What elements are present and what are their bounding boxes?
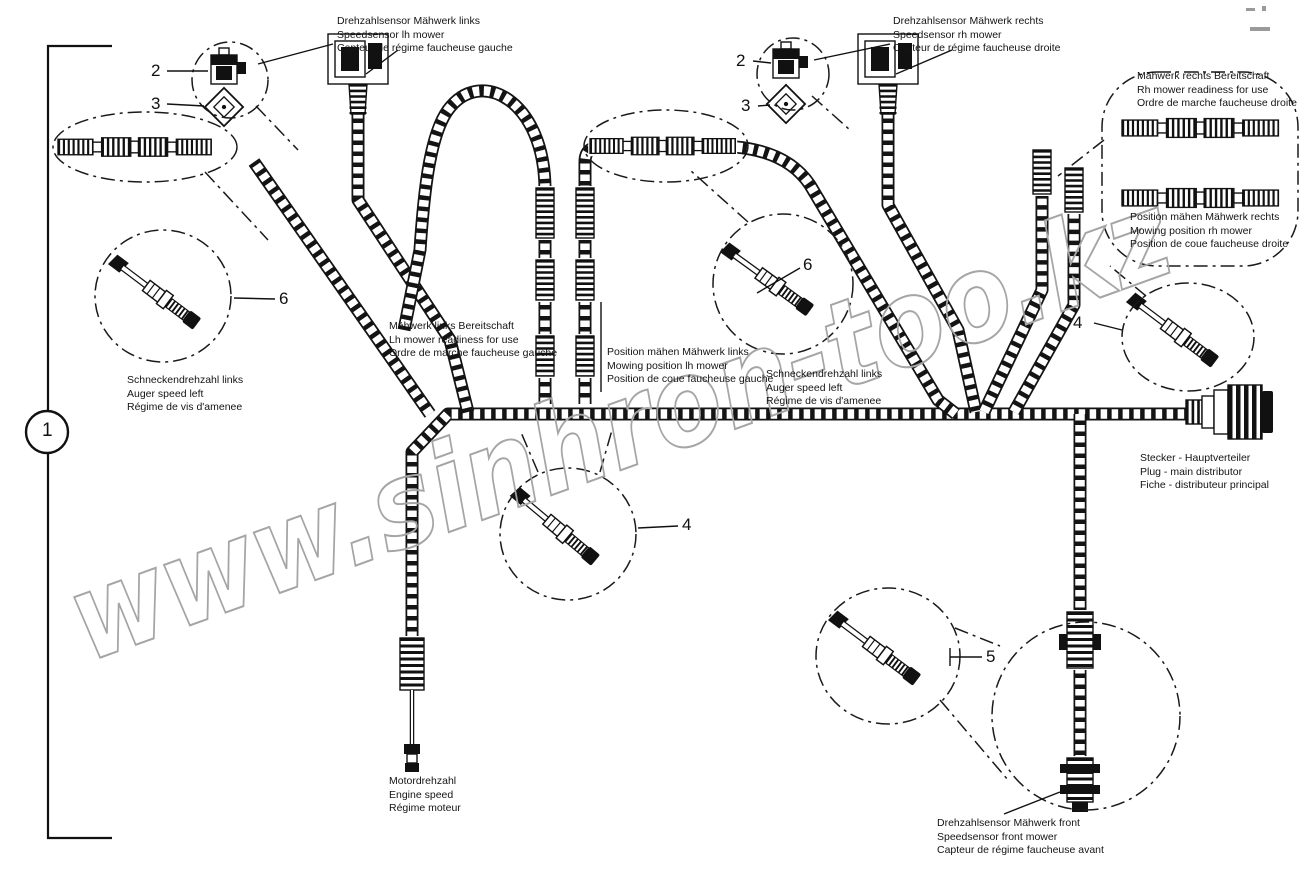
- label-line-de: Position mähen Mähwerk links: [607, 346, 773, 360]
- label-line-fr: Capteur de régime faucheuse droite: [893, 42, 1061, 56]
- solenoid-connector-left: [211, 48, 246, 84]
- callout-4-middle: 4: [682, 516, 691, 533]
- label-line-en: Auger speed left: [766, 382, 882, 396]
- label-drehzahlsensor-front: Drehzahlsensor Mähwerk front Speedsensor…: [937, 817, 1104, 858]
- inline-connector-topleft: [56, 138, 213, 156]
- label-line-fr: Fiche - distributeur principal: [1140, 479, 1269, 493]
- label-motordrehzahl: Motordrehzahl Engine speed Régime moteur: [389, 775, 461, 816]
- label-line-fr: Régime de vis d'amenee: [127, 401, 243, 415]
- label-bereitschaft-rechts: Mähwerk rechts Bereitschaft Rh mower rea…: [1137, 70, 1297, 111]
- callout-3-right: 3: [741, 97, 750, 114]
- label-line-de: Motordrehzahl: [389, 775, 461, 789]
- sensor-detail-6-left: [107, 253, 203, 331]
- label-line-en: Engine speed: [389, 789, 461, 803]
- label-line-en: Rh mower readiness for use: [1137, 84, 1297, 98]
- label-line-fr: Ordre de marche faucheuse droite: [1137, 97, 1297, 111]
- seal-right: [767, 85, 805, 123]
- label-line-en: Speedsensor front mower: [937, 831, 1104, 845]
- label-line-fr: Régime moteur: [389, 802, 461, 816]
- label-bereitschaft-links: Mähwerk links Bereitschaft Lh mower read…: [389, 320, 557, 361]
- label-line-fr: Ordre de marche faucheuse gauche: [389, 347, 557, 361]
- label-line-de: Drehzahlsensor Mähwerk links: [337, 15, 513, 29]
- watermark-text: www.sinhron-too.kz: [51, 165, 1190, 689]
- label-line-en: Auger speed left: [127, 388, 243, 402]
- inline-connector-right-row1: [1120, 119, 1280, 138]
- label-line-en: Lh mower readiness for use: [389, 334, 557, 348]
- label-line-en: Mowing position rh mower: [1130, 225, 1288, 239]
- callout-1: 1: [42, 422, 53, 439]
- label-line-en: Speedsensor rh mower: [893, 29, 1061, 43]
- diagram-stage: www.sinhron-too.kz Drehzahlsensor Mähwer…: [0, 0, 1307, 883]
- corner-mark: [1246, 6, 1292, 14]
- label-schneckendrehzahl-links: Schneckendrehzahl links Auger speed left…: [127, 374, 243, 415]
- label-position-links: Position mähen Mähwerk links Mowing posi…: [607, 346, 773, 387]
- callout-4-right: 4: [1073, 314, 1082, 331]
- label-line-fr: Position de coue faucheuse droite: [1130, 238, 1288, 252]
- callout-2-right: 2: [736, 52, 745, 69]
- label-line-de: Drehzahlsensor Mähwerk front: [937, 817, 1104, 831]
- label-line-en: Speedsensor lh mower: [337, 29, 513, 43]
- callout-2-left: 2: [151, 62, 160, 79]
- label-line-fr: Position de coue faucheuse gauche: [607, 373, 773, 387]
- label-line-de: Position mähen Mähwerk rechts: [1130, 211, 1288, 225]
- engine-speed-connector: [400, 636, 424, 772]
- solenoid-connector-right: [773, 42, 808, 78]
- label-line-en: Mowing position lh mower: [607, 360, 773, 374]
- callout-5: 5: [986, 648, 995, 665]
- label-position-rechts: Position mähen Mähwerk rechts Mowing pos…: [1130, 211, 1288, 252]
- callout-6-right: 6: [803, 256, 812, 273]
- harness-diagram: www.sinhron-too.kz: [0, 0, 1307, 883]
- label-stecker-hauptverteiler: Stecker - Hauptverteiler Plug - main dis…: [1140, 452, 1269, 493]
- main-plug: [1186, 385, 1273, 439]
- label-schneckendrehzahl-rechts: Schneckendrehzahl links Auger speed left…: [766, 368, 882, 409]
- sensor-detail-5: [827, 609, 923, 687]
- callout-3-left: 3: [151, 95, 160, 112]
- label-drehzahlsensor-links: Drehzahlsensor Mähwerk links Speedsensor…: [337, 15, 513, 56]
- label-drehzahlsensor-rechts: Drehzahlsensor Mähwerk rechts Speedsenso…: [893, 15, 1061, 56]
- label-line-en: Plug - main distributor: [1140, 466, 1269, 480]
- label-line-de: Mähwerk rechts Bereitschaft: [1137, 70, 1297, 84]
- label-line-fr: Régime de vis d'amenee: [766, 395, 882, 409]
- label-line-de: Drehzahlsensor Mähwerk rechts: [893, 15, 1061, 29]
- label-line-fr: Capteur de régime faucheuse avant: [937, 844, 1104, 858]
- label-line-de: Schneckendrehzahl links: [127, 374, 243, 388]
- bracket-item-1: [26, 46, 112, 838]
- inline-connector-middle: [588, 137, 737, 154]
- label-line-de: Mähwerk links Bereitschaft: [389, 320, 557, 334]
- label-line-fr: Capteur de régime faucheuse gauche: [337, 42, 513, 56]
- label-line-de: Stecker - Hauptverteiler: [1140, 452, 1269, 466]
- label-line-de: Schneckendrehzahl links: [766, 368, 882, 382]
- seal-left: [205, 88, 243, 126]
- callout-6-left: 6: [279, 290, 288, 307]
